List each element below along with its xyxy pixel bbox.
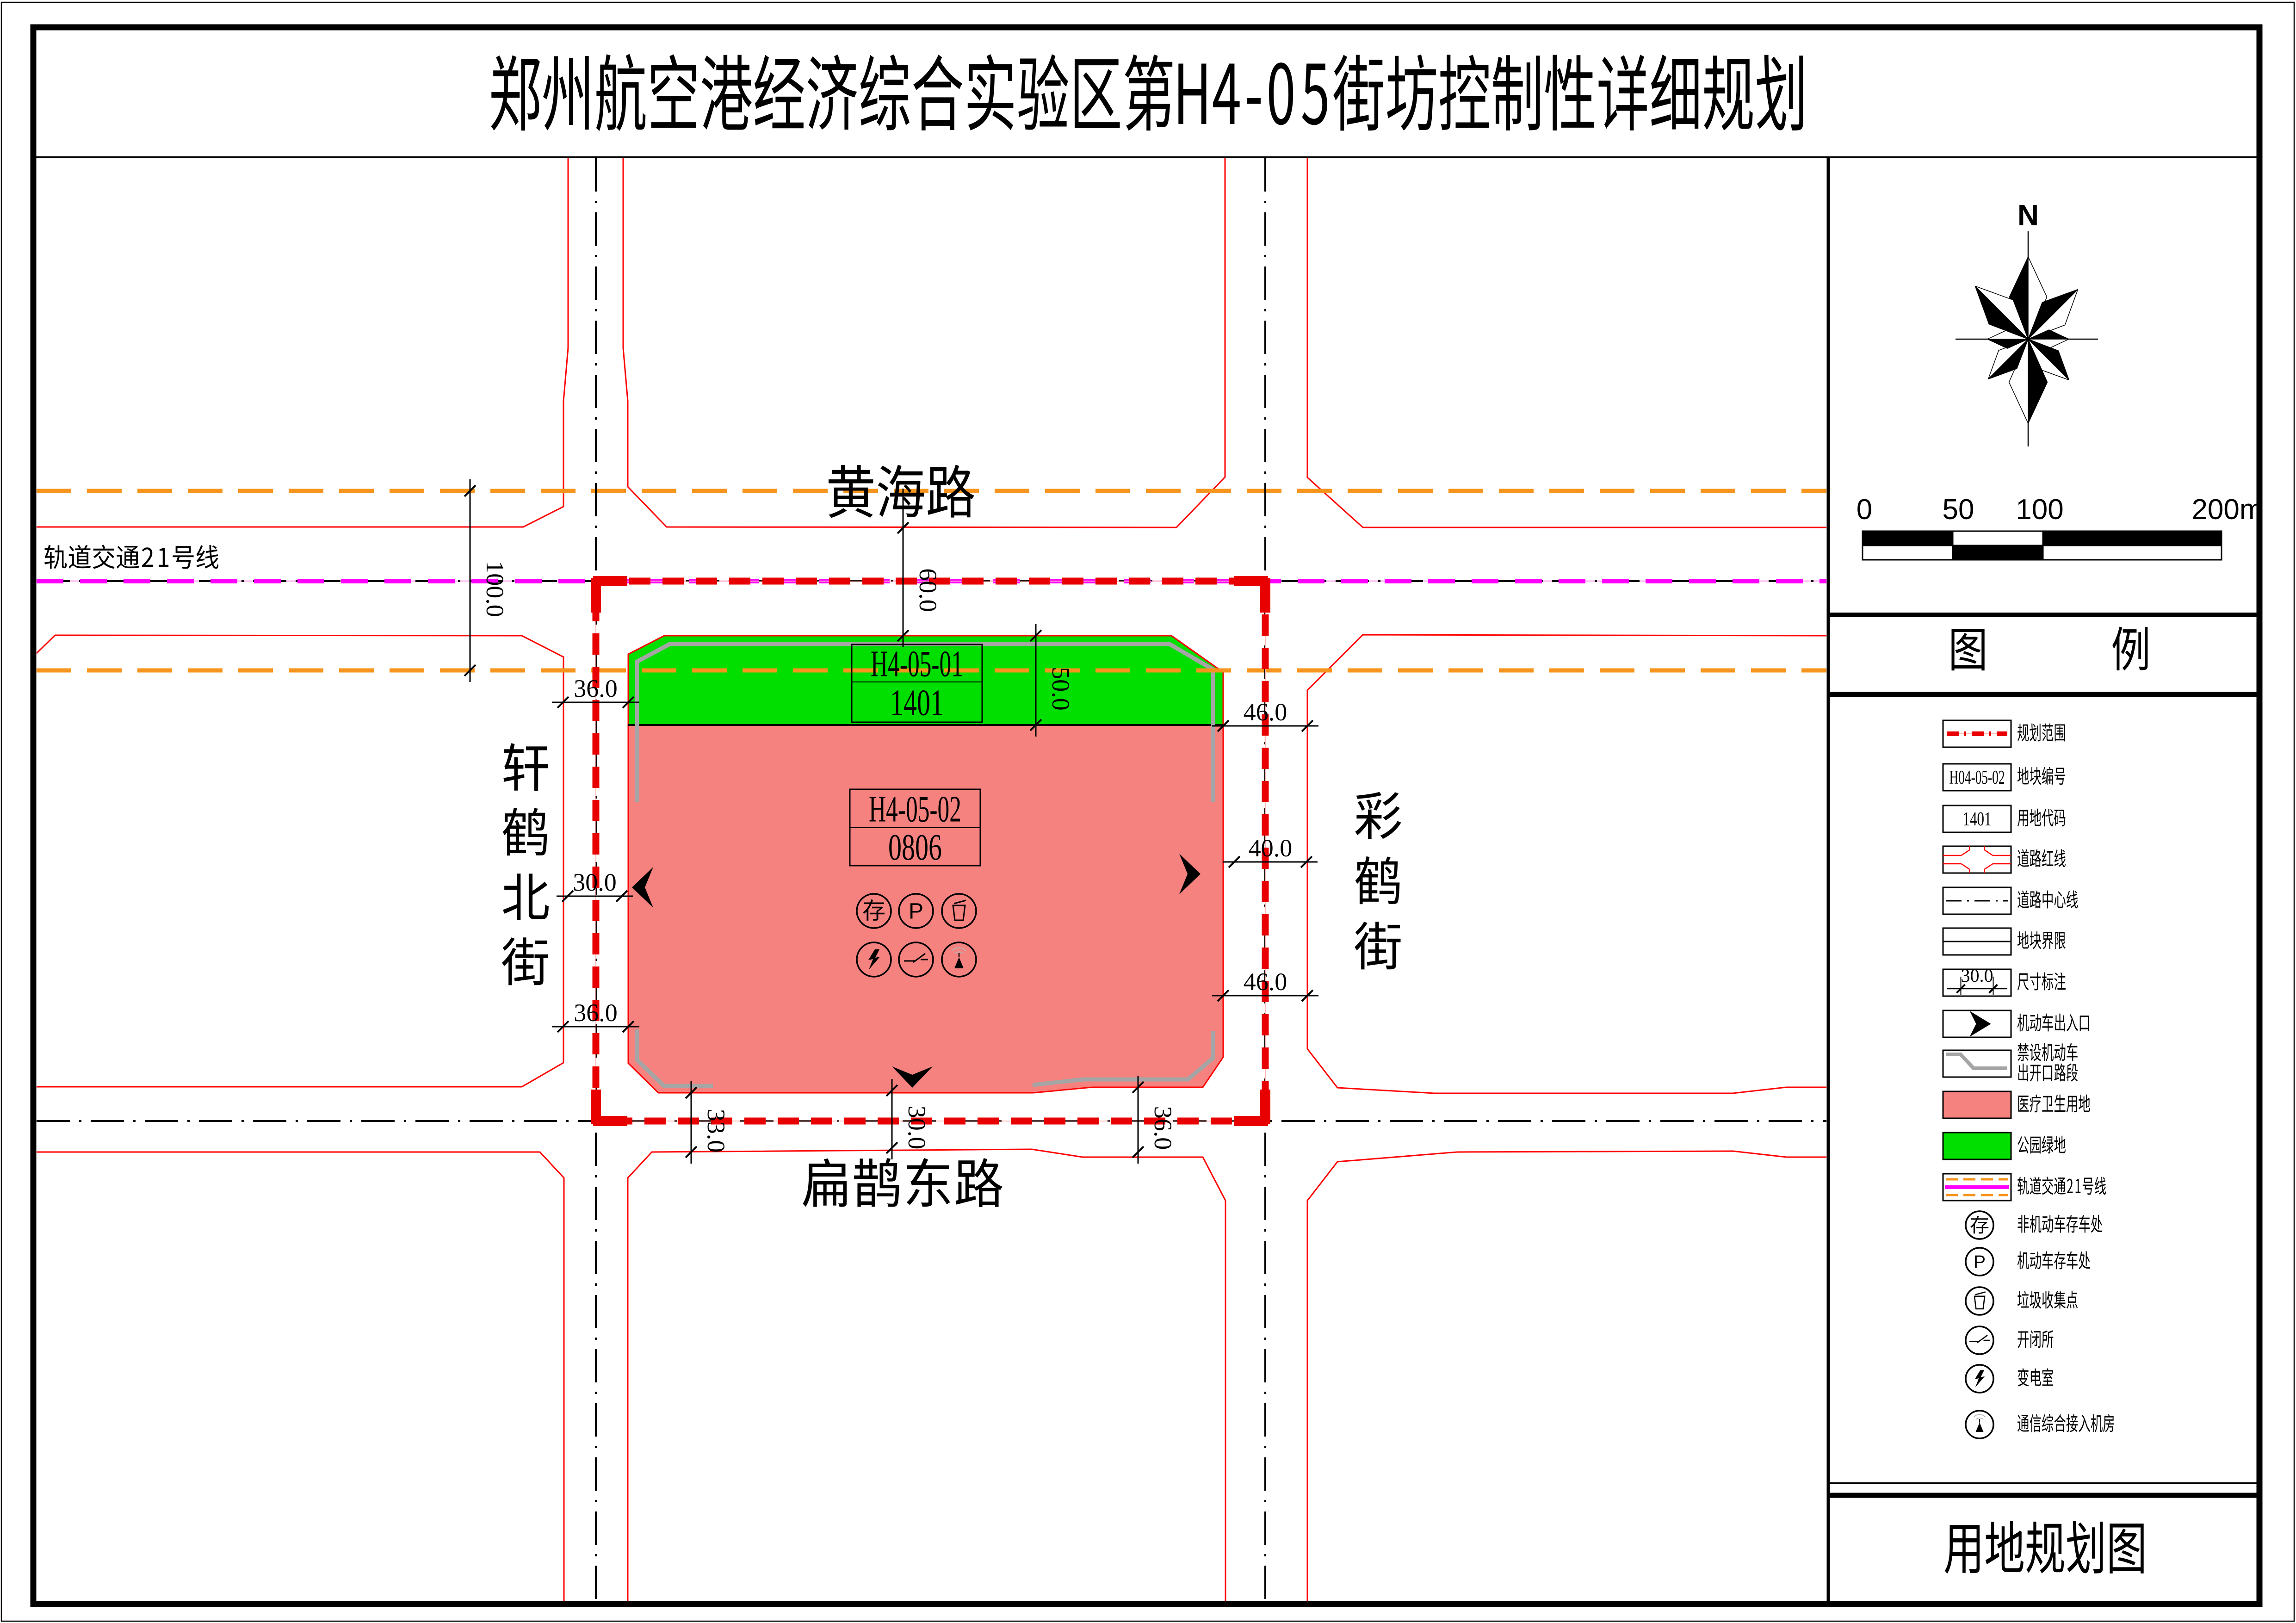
svg-text:46.0: 46.0 xyxy=(1244,698,1287,726)
svg-text:50.0: 50.0 xyxy=(1047,667,1075,711)
svg-text:60.0: 60.0 xyxy=(914,568,942,612)
svg-text:36.0: 36.0 xyxy=(1149,1106,1177,1150)
svg-text:30.0: 30.0 xyxy=(573,868,617,896)
svg-text:36.0: 36.0 xyxy=(574,675,618,702)
svg-text:40.0: 40.0 xyxy=(1249,834,1293,862)
svg-text:50: 50 xyxy=(1943,494,1974,526)
svg-text:36.0: 36.0 xyxy=(574,999,618,1027)
svg-text:0: 0 xyxy=(1857,494,1872,526)
svg-text:30.0: 30.0 xyxy=(903,1106,931,1150)
svg-text:P: P xyxy=(1974,1252,1986,1272)
svg-text:33.0: 33.0 xyxy=(702,1109,730,1153)
svg-text:H4-05-01: H4-05-01 xyxy=(871,644,963,685)
svg-text:1401: 1401 xyxy=(890,683,944,724)
svg-text:0806: 0806 xyxy=(888,827,942,868)
svg-text:200m: 200m xyxy=(2191,494,2263,526)
svg-text:100.0: 100.0 xyxy=(481,561,509,617)
svg-text:H04-05-02: H04-05-02 xyxy=(1949,767,2005,788)
svg-text:N: N xyxy=(2018,198,2039,232)
svg-text:46.0: 46.0 xyxy=(1244,968,1287,996)
svg-text:P: P xyxy=(909,899,923,924)
svg-text:1401: 1401 xyxy=(1963,809,1992,830)
svg-text:H4-05-02: H4-05-02 xyxy=(869,789,961,830)
svg-text:100: 100 xyxy=(2016,494,2063,526)
svg-text:30.0: 30.0 xyxy=(1961,965,1993,986)
